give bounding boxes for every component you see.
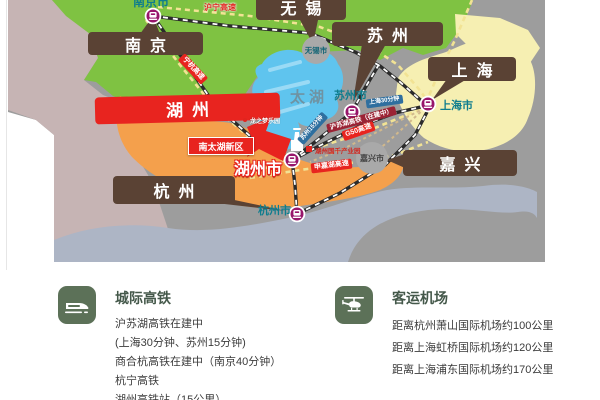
rail-line-3: 商合杭高铁在建中（南京40分钟） <box>115 353 281 372</box>
marker-nanjing-city: 南京市 <box>133 0 169 10</box>
rail-line-5: 湖州高铁站（15公里） <box>115 391 281 400</box>
region-map: 南京 无锡 苏州 上海 嘉兴 杭州 湖州 南太湖新区 南京市 无锡市 苏州市 上… <box>8 0 545 262</box>
rail-line-4: 杭宁高铁 <box>115 372 281 391</box>
rail-section-title: 城际高铁 <box>115 288 281 308</box>
station-icon-nanjing <box>146 9 161 24</box>
airport-line-3: 距离上海浦东国际机场约170公里 <box>392 359 553 381</box>
callout-wuxi: 无锡 <box>256 0 346 20</box>
rail-line-1: 沪苏湖高铁在建中 <box>115 315 281 334</box>
station-icon-shanghai <box>421 97 436 112</box>
section-airports: 客运机场 距离杭州萧山国际机场约100公里 距离上海虹桥国际机场约120公里 距… <box>335 286 553 381</box>
rail-line-2: (上海30分钟、苏州15分钟) <box>115 334 281 353</box>
callout-suzhou: 苏州 <box>332 22 443 46</box>
lake-taihu-label: 太湖 <box>290 86 328 107</box>
marker-hangzhou-city: 杭州市 <box>258 202 291 218</box>
infographic-page: 南京 无锡 苏州 上海 嘉兴 杭州 湖州 南太湖新区 南京市 无锡市 苏州市 上… <box>0 0 600 400</box>
callout-shanghai: 上海 <box>428 57 516 81</box>
train-icon <box>58 286 96 324</box>
nantaihu-district-tag: 南太湖新区 <box>188 137 254 155</box>
marker-jiaxing-city: 嘉兴市 <box>356 142 388 174</box>
tag-huning-expressway: 沪宁高速 <box>204 2 236 13</box>
helicopter-icon <box>335 286 373 324</box>
industry-park-marker <box>306 146 312 152</box>
marker-wuxi-city: 无锡市 <box>302 36 330 64</box>
airport-section-title: 客运机场 <box>392 288 553 308</box>
poi-industry-park: 湖州国千产业园 <box>315 145 361 155</box>
marker-suzhou-city: 苏州市 <box>334 87 367 103</box>
airport-line-1: 距离杭州萧山国际机场约100公里 <box>392 315 553 337</box>
callout-jiaxing: 嘉兴 <box>403 150 517 176</box>
marker-shanghai-city: 上海市 <box>440 97 473 113</box>
page-edge-line <box>6 0 7 270</box>
marker-huzhou-city: 湖州市 <box>234 155 282 179</box>
callout-hangzhou: 杭州 <box>113 176 235 204</box>
callout-nanjing: 南京 <box>88 32 203 55</box>
station-icon-hangzhou <box>290 207 305 222</box>
airport-line-2: 距离上海虹桥国际机场约120公里 <box>392 337 553 359</box>
station-icon-huzhou <box>285 153 300 168</box>
poi-dragon-dream-park: 龙之梦乐园 <box>250 116 280 125</box>
pin-icon <box>243 118 247 122</box>
section-intercity-rail: 城际高铁 沪苏湖高铁在建中 (上海30分钟、苏州15分钟) 商合杭高铁在建中（南… <box>58 286 281 400</box>
